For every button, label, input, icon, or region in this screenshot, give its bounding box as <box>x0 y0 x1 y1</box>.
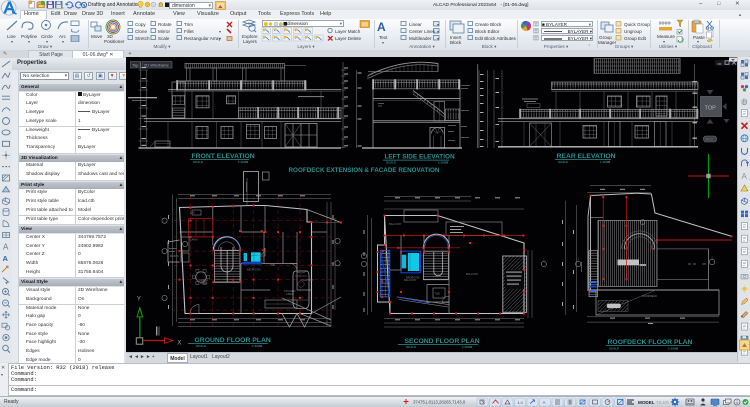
svg-text:T&B: T&B <box>270 263 275 267</box>
svg-text:LANAI: LANAI <box>190 238 198 242</box>
svg-text:1:1: 1:1 <box>518 400 524 405</box>
svg-text:1:100M: 1:100M <box>462 345 473 349</box>
svg-text:ROOFDECK FLOOR PLAN: ROOFDECK FLOOR PLAN <box>608 339 693 346</box>
svg-text:GROUND FLOOR PLAN: GROUND FLOOR PLAN <box>195 337 271 344</box>
svg-text:374751.8113,28265.7143,0: 374751.8113,28265.7143,0 <box>413 400 466 405</box>
svg-text:A: A <box>742 172 748 181</box>
svg-text:1:100M: 1:100M <box>438 160 449 164</box>
svg-text:A: A <box>3 254 9 263</box>
svg-text:A: A <box>3 242 9 251</box>
svg-text:X: X <box>177 341 181 347</box>
svg-text:WCS: WCS <box>706 138 713 142</box>
svg-text:ROOFDECK EXTENSION & FACADE RE: ROOFDECK EXTENSION & FACADE RENOVATION <box>289 167 440 174</box>
svg-text:SCALE: SCALE <box>386 160 396 164</box>
svg-text:LAV: LAV <box>190 211 195 215</box>
svg-text:A: A <box>543 400 546 405</box>
svg-text:BALCONY: BALCONY <box>466 272 479 276</box>
svg-text:SCALE: SCALE <box>558 160 568 164</box>
svg-text:SCALE: SCALE <box>196 344 206 348</box>
svg-text:BALCONY: BALCONY <box>404 278 417 282</box>
svg-text:1:100M: 1:100M <box>600 160 611 164</box>
svg-text:SCALE: SCALE <box>406 345 416 349</box>
svg-text:AREA: AREA <box>286 292 293 296</box>
svg-text:1:100M: 1:100M <box>238 160 249 164</box>
svg-text:BALCONY: BALCONY <box>389 222 402 226</box>
svg-text:1:100M: 1:100M <box>252 344 263 348</box>
svg-text:ROOFDECK: ROOFDECK <box>643 294 658 298</box>
svg-text:MODEL: MODEL <box>638 400 655 405</box>
svg-text:SCALE: SCALE <box>193 160 203 164</box>
svg-text:SCALE: SCALE <box>609 347 619 351</box>
svg-text:SECOND FLOOR PLAN: SECOND FLOOR PLAN <box>405 338 480 345</box>
svg-text:BEDROOM: BEDROOM <box>247 268 260 272</box>
svg-text:Top: Top <box>132 63 139 68</box>
svg-text:TILED: TILED <box>656 400 670 405</box>
svg-text:T&B: T&B <box>435 292 440 296</box>
svg-text:2D Wireframe: 2D Wireframe <box>144 63 169 68</box>
svg-text:MAID'S: MAID'S <box>170 254 179 258</box>
svg-text:Y: Y <box>137 297 141 303</box>
svg-text:1:100M: 1:100M <box>668 347 679 351</box>
svg-text:TOP: TOP <box>705 106 717 112</box>
